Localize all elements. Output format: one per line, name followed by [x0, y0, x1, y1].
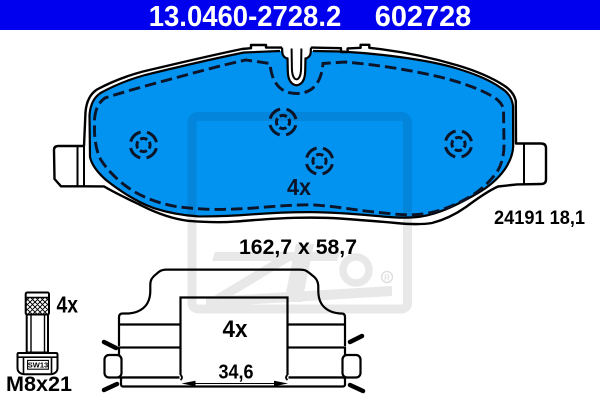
svg-text:13.0460-2728.2: 13.0460-2728.2 [149, 1, 342, 33]
svg-text:34,6: 34,6 [219, 362, 254, 384]
svg-text:4x: 4x [57, 292, 79, 318]
svg-text:24191 18,1: 24191 18,1 [494, 208, 585, 229]
svg-text:4x: 4x [223, 316, 249, 343]
svg-text:602728: 602728 [375, 1, 472, 33]
svg-text:M8x21: M8x21 [6, 372, 72, 396]
svg-text:R: R [384, 274, 390, 283]
svg-text:SW13: SW13 [28, 361, 48, 370]
svg-text:4x: 4x [287, 174, 311, 200]
